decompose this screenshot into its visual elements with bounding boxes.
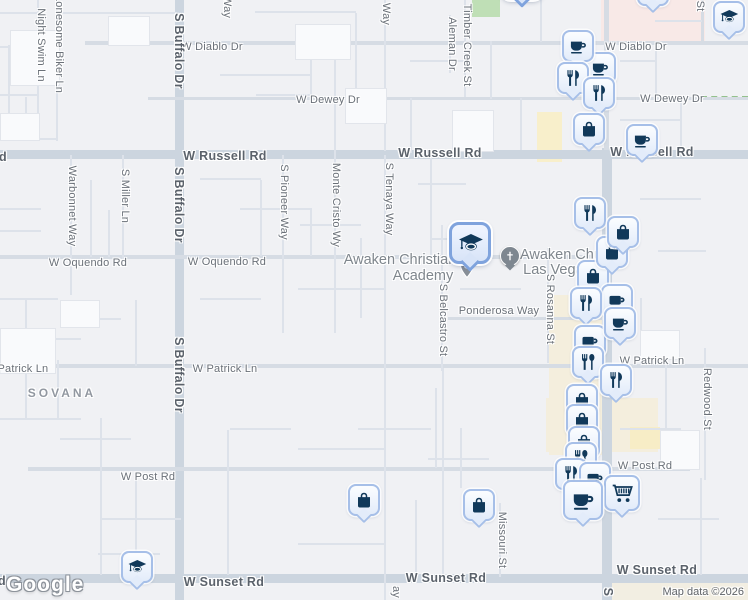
road-segment — [175, 0, 184, 600]
road-segment — [0, 364, 748, 368]
road-segment — [460, 288, 521, 290]
road-segment — [490, 41, 492, 99]
street-label: Way — [380, 3, 392, 25]
road-segment — [415, 500, 417, 575]
road-segment — [0, 12, 39, 14]
building-footprint — [0, 328, 56, 374]
road-segment — [658, 250, 706, 252]
road-segment — [310, 57, 312, 99]
road-segment — [135, 300, 137, 366]
road-segment — [334, 155, 336, 333]
road-segment — [655, 48, 657, 98]
street-label: Ponderosa Way — [459, 305, 539, 317]
road-segment — [620, 119, 681, 121]
road-segment — [298, 448, 385, 450]
shopping-bag-marker[interactable] — [607, 216, 639, 248]
road-segment — [230, 428, 291, 430]
shopping-cart-marker[interactable] — [604, 475, 640, 511]
road-segment — [57, 360, 59, 418]
road-segment — [410, 60, 465, 62]
street-label: Monte Cristo Wy — [330, 163, 342, 247]
road-segment — [90, 180, 92, 257]
graduation-cap-marker[interactable] — [449, 222, 491, 264]
road-segment — [0, 418, 81, 420]
road-segment — [384, 155, 386, 600]
road-segment — [700, 478, 702, 575]
road-segment — [464, 0, 466, 97]
road-segment — [540, 0, 542, 42]
road-segment — [255, 11, 356, 13]
road-segment — [430, 158, 432, 257]
road-segment — [658, 518, 719, 520]
coffee-cup-marker[interactable] — [604, 307, 636, 339]
building-footprint — [10, 30, 60, 86]
road-segment — [499, 503, 501, 577]
road-segment — [56, 12, 177, 14]
street-label: W Post Rd — [121, 471, 175, 483]
road-segment — [282, 155, 284, 333]
shopping-bag-marker[interactable] — [463, 489, 495, 521]
road-segment — [0, 94, 39, 96]
road-segment — [298, 543, 384, 545]
road-segment — [449, 15, 451, 73]
road-segment — [108, 210, 110, 257]
restaurant-marker[interactable] — [570, 287, 602, 319]
road-segment — [60, 438, 131, 440]
coffee-cup-marker[interactable] — [562, 30, 594, 62]
road-segment — [256, 94, 312, 96]
street-label: Missouri St — [496, 512, 508, 569]
road-segment — [240, 208, 311, 210]
road-segment — [410, 98, 412, 153]
road-segment — [70, 155, 72, 295]
building-footprint — [108, 16, 150, 46]
road-segment — [0, 230, 41, 232]
road-segment — [200, 298, 261, 300]
building-footprint — [452, 110, 494, 152]
road-segment — [442, 368, 444, 575]
road-segment — [418, 183, 466, 185]
restaurant-marker[interactable] — [600, 364, 632, 396]
road-segment — [148, 97, 748, 100]
road-segment — [122, 155, 124, 260]
road-segment — [435, 388, 437, 468]
road-segment — [85, 41, 748, 45]
road-segment — [0, 574, 748, 583]
road-segment — [200, 178, 261, 180]
place-label: Academy — [393, 268, 453, 284]
google-logo[interactable]: Google — [6, 573, 84, 597]
road-segment — [100, 518, 181, 520]
generic-circle-marker[interactable] — [637, 0, 669, 6]
graduation-cap-marker[interactable] — [121, 551, 153, 583]
road-segment — [655, 20, 702, 22]
road-segment — [520, 98, 522, 150]
street-label: S Miller Ln — [119, 169, 131, 223]
street-label: ay — [390, 586, 402, 598]
coffee-cup-marker[interactable] — [626, 124, 658, 156]
shopping-bag-marker[interactable] — [573, 113, 605, 145]
road-segment — [640, 198, 701, 200]
road-segment — [334, 50, 336, 157]
road-segment — [358, 428, 431, 430]
park-area — [472, 0, 500, 17]
road-segment — [300, 224, 361, 226]
building-footprint — [60, 300, 100, 328]
street-label: Redwood St — [701, 368, 713, 430]
street-label: S Pioneer Way — [278, 164, 290, 240]
road-segment — [0, 208, 41, 210]
building-footprint — [660, 430, 700, 470]
road-segment — [355, 13, 357, 99]
road-segment — [220, 74, 311, 76]
building-footprint — [0, 113, 40, 141]
road-segment — [441, 225, 443, 371]
street-label: Warbonnet Way — [66, 166, 78, 247]
road-segment — [384, 0, 386, 151]
street-label: Way — [221, 0, 233, 18]
map-canvas[interactable]: W Diablo DrW Diablo DrW Dewey DrW Dewey … — [0, 0, 748, 600]
graduation-cap-marker[interactable] — [713, 1, 745, 33]
road-segment — [100, 418, 102, 575]
restaurant-marker[interactable] — [574, 197, 606, 229]
road-segment — [227, 430, 229, 575]
building-footprint — [295, 24, 351, 60]
building-footprint — [640, 330, 680, 360]
street-label: S Belcastro St — [437, 284, 449, 357]
road-segment — [298, 288, 385, 290]
map-attribution: Map data ©2026 — [663, 586, 745, 598]
road-segment — [360, 238, 362, 318]
road-segment — [704, 348, 706, 480]
building-footprint — [345, 88, 387, 124]
coffee-cup-marker[interactable] — [563, 480, 603, 520]
restaurant-marker[interactable] — [583, 77, 615, 109]
road-segment — [428, 458, 489, 460]
church-poi-icon[interactable] — [500, 246, 520, 266]
commercial-area — [630, 427, 660, 449]
road-segment — [0, 298, 58, 300]
neighborhood-label: SOVANA — [28, 386, 96, 400]
road-segment — [260, 180, 262, 256]
road-segment — [680, 99, 682, 151]
road-segment — [547, 248, 549, 363]
shopping-bag-marker[interactable] — [348, 484, 380, 516]
road-segment — [310, 208, 312, 256]
road-segment — [620, 60, 656, 62]
